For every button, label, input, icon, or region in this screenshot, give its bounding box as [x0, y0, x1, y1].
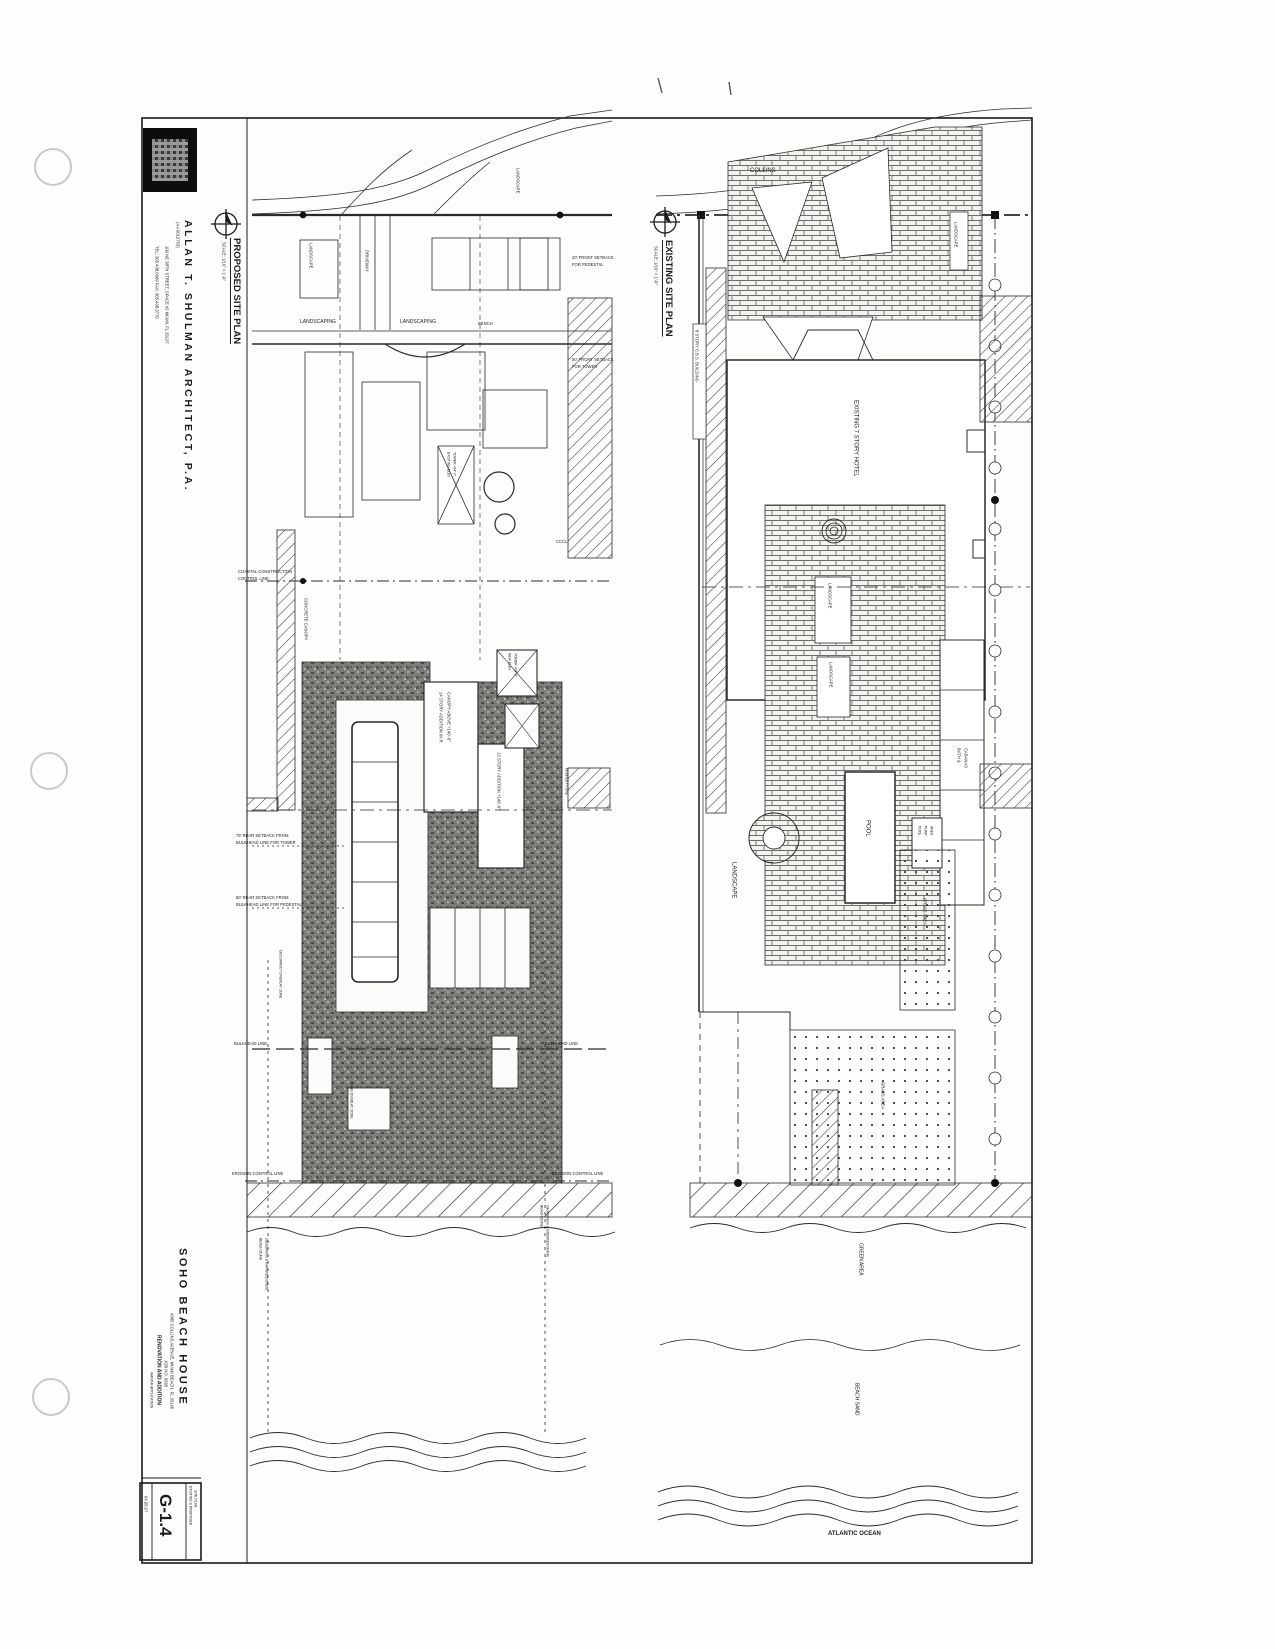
beach-dune-label: (SEAGRASS & GROUNDCOVER) — [264, 1238, 268, 1290]
landscape-label: LANDSCAPE — [515, 168, 519, 193]
new-elev-tower-label: NEW ELEV — [507, 653, 511, 671]
front-setback-tower-label: FOR TOWER — [572, 365, 597, 369]
grass-area-label: GRASS AREA — [922, 898, 926, 925]
tower-addition-label: 14 STORY ADDITION IN R — [438, 692, 442, 743]
scan-marks — [658, 78, 731, 95]
concrete-canopy-label: CONCRETE CANOPY — [303, 598, 307, 640]
erosion-control-line-label: EROSION CONTROL LINE — [232, 1172, 283, 1176]
architect-address: 100 NE 38TH STREET, SPACE #2 MIAMI, FL 3… — [164, 246, 168, 344]
architect-license: (AA 0012763) — [175, 222, 179, 248]
north-arrow-icon — [650, 207, 680, 237]
rear-setback-pedestal-label: BULKHEAD LINE FOR PEDESTAL — [236, 903, 302, 907]
architect-name: ALLAN T. SHULMAN ARCHITECT, P.A. — [182, 220, 193, 492]
existing-elev-tower-label: TOWER +64'-0" — [452, 452, 456, 476]
rear-setback-tower-label: BULKHEAD LINE FOR TOWER — [236, 841, 296, 845]
occupancy-overlay-zone-label: OCCUPANCY OVERLAY ZONE — [278, 950, 282, 998]
beach-dune-label: BEACH DUNE — [258, 1238, 262, 1260]
new-elev-tower-label: TOWER +64'-0" — [513, 653, 517, 677]
bulkhead-line-label: BULKHEAD LINE — [234, 1042, 267, 1046]
qr-code-pattern — [152, 139, 188, 181]
coastal-construction-line-label: COASTAL CONSTRUCTION — [238, 570, 292, 574]
rear-setback-tower-label: 75' REAR SETBACK FROM — [236, 834, 288, 838]
north-arrow-icon — [211, 209, 241, 239]
pool-pump-area-label: POOL — [917, 826, 921, 835]
sheet-title-line2: SITE PLAN — [193, 1490, 197, 1507]
sheet-date: 04.05.07 — [143, 1496, 147, 1512]
beach-dune-label: (SEAGRASS & GROUNDCOVER) — [545, 1205, 549, 1257]
collins-avenue-label: COLLINS — [750, 168, 776, 174]
front-setback-tower-label: 50' FRONT SETBACK — [572, 358, 614, 362]
driveway-label: DRIVEWAY — [364, 250, 368, 272]
pool-label: POOL — [864, 820, 870, 837]
green-area-label: GREEN AREA — [857, 1243, 862, 1276]
proposed-plan-scale: SCALE: 1/16" = 1'-0" — [221, 242, 225, 281]
landscape-label: LANDSCAPE — [828, 662, 832, 687]
bulkhead-line-label: BULKHEAD LINE — [545, 1042, 578, 1046]
existing-hotel-label: EXISTING 7 STORY HOTEL — [852, 400, 858, 477]
architect-phone: TEL: 305.438.0609 FAX: 305.438.0770 — [154, 246, 158, 319]
front-setback-pedestal-label: FOR PEDESTAL — [572, 263, 604, 267]
landscape-label: LANDSCAPE — [827, 583, 831, 608]
atlantic-ocean-label: ATLANTIC OCEAN — [828, 1531, 881, 1537]
rear-setback-pedestal-label: 50' REAR SETBACK FROM — [236, 896, 288, 900]
submission-type: WAIVER APPLICATION — [149, 1372, 153, 1408]
sheet-number: G-1.4 — [156, 1494, 174, 1537]
drawing-sheet: ALLAN T. SHULMAN ARCHITECT, P.A. (AA 001… — [0, 0, 1275, 1649]
grass-area-label: GRASS AREA — [880, 1082, 884, 1109]
job-number: JOB NO. 0505 — [163, 1360, 167, 1387]
existing-plan-title: EXISTING SITE PLAN — [663, 240, 673, 337]
dune-overlay-zone-label: DUNE OVERLAY ZONE — [349, 1082, 353, 1119]
landscape-label: LANDSCAPE — [730, 862, 736, 898]
landscape-label: LANDSCAPE — [308, 243, 312, 268]
qr-code — [143, 128, 197, 192]
existing-plan-scale: SCALE: 1/16" = 1'-0" — [653, 246, 657, 285]
pool-pump-area-label: PUMP — [923, 826, 927, 836]
story-addition-label: 13 STORY ADDITION +140'-6" — [496, 752, 500, 810]
tower-addition-label: CANOPY ABOVE +140'-6" — [446, 692, 450, 742]
proposed-plan-linework — [245, 110, 615, 1472]
bath-cabanas-label: CABANAS — [963, 748, 967, 768]
erosion-control-line-label: EROSION CONTROL LINE — [552, 1172, 603, 1176]
cccl-label: CCCL — [556, 540, 567, 544]
project-type: RENOVATION AND ADDITION — [155, 1335, 160, 1405]
project-address: 4385 COLLINS AVENUE, MIAMI BEACH, FL 331… — [169, 1313, 173, 1409]
landscaping-label: LANDSCAPING — [300, 320, 336, 325]
existing-plan-linework — [656, 108, 1032, 1526]
coastal-construction-line-label: CONTROL LINE — [238, 577, 269, 581]
bath-cabanas-label: BATH & — [956, 748, 960, 763]
front-setback-pedestal-label: 20' FRONT SETBACK — [572, 256, 614, 260]
landscaping-label: LANDSCAPING — [400, 320, 436, 325]
pool-pump-area-label: AREA — [929, 826, 933, 835]
project-name: SOHO BEACH HOUSE — [176, 1248, 188, 1406]
beach-dune-label: BEACH DUNE — [539, 1205, 543, 1227]
existing-elev-tower-label: EXISTING ELEV — [446, 452, 450, 477]
cbs-building-label: 8 STORY C.B.S. BUILDING — [694, 330, 698, 382]
landscape-label: LANDSCAPE — [953, 222, 957, 247]
sheet-title-line1: EXISTING & PROPOSED — [188, 1486, 192, 1525]
bench-label: BENCH — [478, 322, 493, 326]
property-line-label: PROPERTY LINE — [564, 768, 568, 795]
beach-sand-label: BEACH SAND — [853, 1383, 858, 1416]
proposed-plan-title: PROPOSED SITE PLAN — [231, 238, 241, 344]
